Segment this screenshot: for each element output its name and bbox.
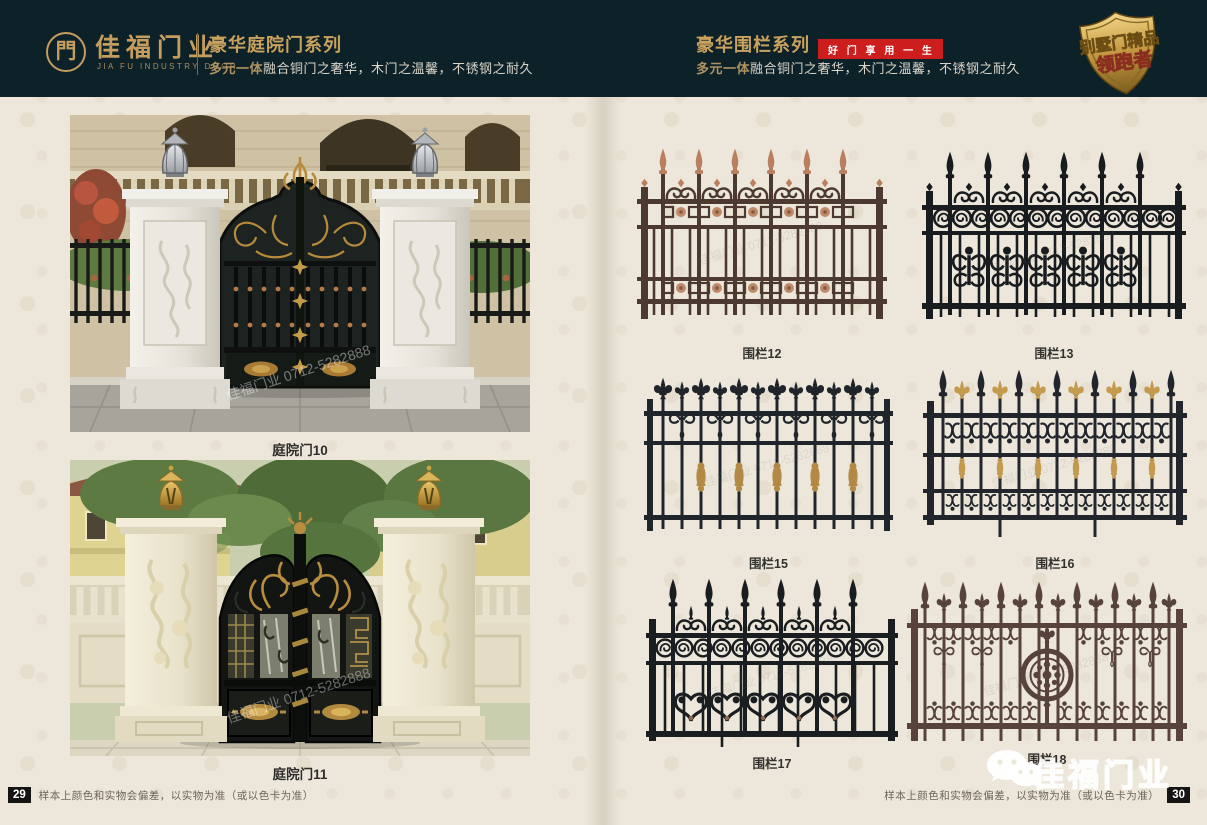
product-label-door10: 庭院门10 xyxy=(70,439,530,459)
left-pillar xyxy=(115,518,227,742)
header-band: 門 佳福门业 JIA FU INDUSTRY DOOR 豪华庭院门系列 多元一体… xyxy=(0,0,1207,97)
left-series-title: 豪华庭院门系列 xyxy=(209,31,342,57)
gold-shield-emblem: 别墅门精品 领跑者 xyxy=(1048,6,1194,102)
left-subtitle-emphasis: 多元一体 xyxy=(209,61,263,76)
fence-label-17: 围栏17 xyxy=(643,753,901,772)
fence-image-12: 佳福门业 0712-5282888 xyxy=(633,147,891,337)
fence-label-12: 围栏12 xyxy=(633,343,891,362)
right-page-footer: 样本上颜色和实物会偏差，以实物为准（或以色卡为准） 30 xyxy=(884,787,1190,803)
fence-image-13: 佳福门业 0712-5282888 xyxy=(918,145,1190,337)
fence-image-17: 佳福门业 0712-5282888 xyxy=(643,575,901,763)
fence-image-16: 佳福门业 0712-5282888 xyxy=(919,365,1191,553)
fence-label-13: 围栏13 xyxy=(918,343,1190,362)
catalog-pages: 佳福门业 0712-5282888 庭院门10 xyxy=(0,97,1207,825)
fence-label-18: 围栏18 xyxy=(901,749,1193,768)
right-series-subtitle: 多元一体融合铜门之奢华，木门之温馨，不锈钢之耐久 xyxy=(696,58,1020,77)
catalog-spread: 門 佳福门业 JIA FU INDUSTRY DOOR 豪华庭院门系列 多元一体… xyxy=(0,0,1207,825)
logo-glyph: 門 xyxy=(56,40,77,63)
photo-courtyard-door-10: 佳福门业 0712-5282888 xyxy=(70,115,530,432)
disclaimer-right: 样本上颜色和实物会偏差，以实物为准（或以色卡为准） xyxy=(884,788,1159,803)
photo-courtyard-door-11: 佳福门业 0712-5282888 xyxy=(70,460,530,756)
fence-label-15: 围栏15 xyxy=(641,553,896,572)
gate-finial xyxy=(294,522,306,534)
product-label-door11: 庭院门11 xyxy=(70,763,530,783)
left-pillar xyxy=(120,189,230,409)
right-series-title: 豪华围栏系列 xyxy=(696,31,810,57)
fence-image-15: 佳福门业 0712-5282888 xyxy=(641,369,896,551)
disclaimer-left: 样本上颜色和实物会偏差，以实物为准（或以色卡为准） xyxy=(39,788,314,803)
left-subtitle-rest: 融合铜门之奢华，木门之温馨，不锈钢之耐久 xyxy=(263,61,533,76)
right-subtitle-emphasis: 多元一体 xyxy=(696,61,750,76)
fence-watermark: 佳福门业 0712-5282888 xyxy=(990,441,1118,491)
fence-image-18: 佳福门业 0712-5282888 xyxy=(901,573,1193,761)
right-pillar xyxy=(373,518,485,742)
page-number-left: 29 xyxy=(8,787,31,803)
left-series-subtitle: 多元一体融合铜门之奢华，木门之温馨，不锈钢之耐久 xyxy=(209,58,533,77)
page-gutter xyxy=(585,97,621,825)
right-subtitle-rest: 融合铜门之奢华，木门之温馨，不锈钢之耐久 xyxy=(750,61,1020,76)
left-page-footer: 29 样本上颜色和实物会偏差，以实物为准（或以色卡为准） xyxy=(8,787,314,803)
header-divider xyxy=(197,33,198,75)
brand-logo-icon: 門 xyxy=(46,32,86,72)
fence-label-16: 围栏16 xyxy=(919,553,1191,572)
right-pillar xyxy=(370,189,480,409)
slogan-badge: 好 门 享 用 一 生 xyxy=(818,39,943,59)
brand-name: 佳福门业 xyxy=(95,28,219,64)
page-number-right: 30 xyxy=(1167,787,1190,803)
